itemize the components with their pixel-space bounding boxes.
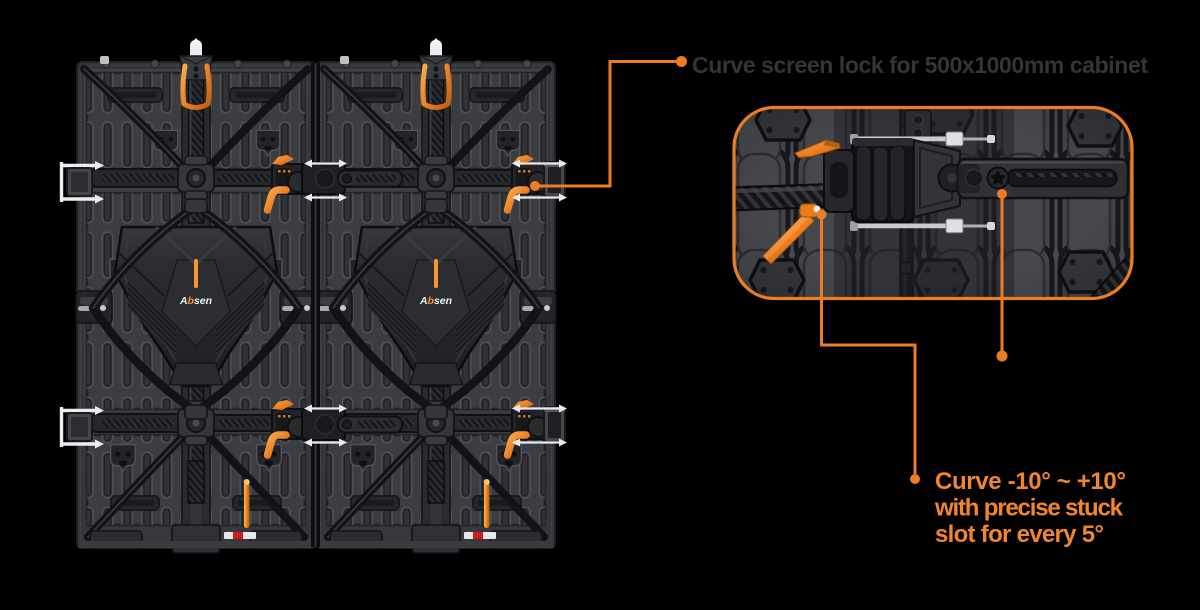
svg-text:slot for every 5°: slot for every 5° — [935, 521, 1104, 548]
svg-text:Absen: Absen — [179, 295, 212, 307]
svg-text:Curve screen lock for 500x1000: Curve screen lock for 500x1000mm cabinet — [692, 52, 1148, 78]
svg-text:Absen: Absen — [419, 295, 452, 307]
svg-text:with precise stuck: with precise stuck — [934, 495, 1124, 522]
svg-text:Curve -10° ~ +10°: Curve -10° ~ +10° — [935, 468, 1126, 495]
